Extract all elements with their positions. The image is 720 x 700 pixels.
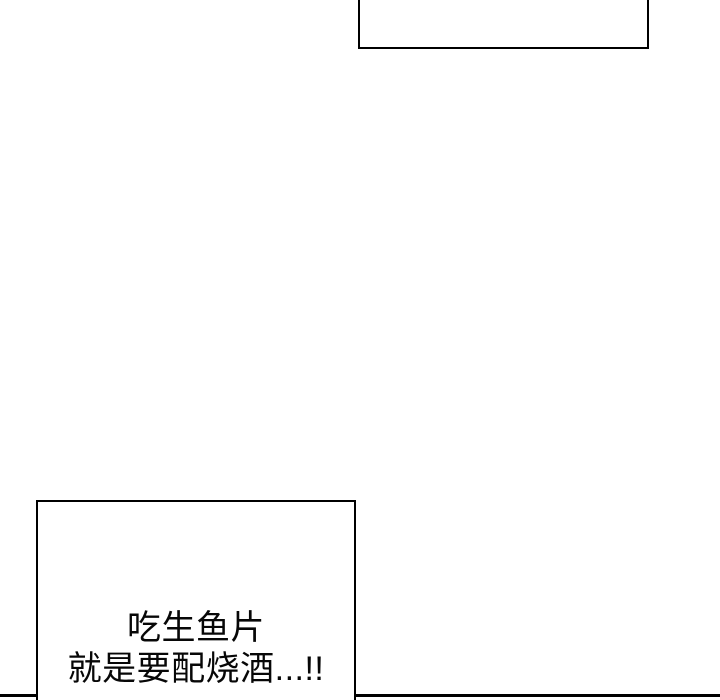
comic-panel: 吃生鱼片 就是要配烧酒...!!: [0, 0, 720, 700]
speech-text: 吃生鱼片 就是要配烧酒...!!: [38, 608, 354, 690]
speech-bubble-top: [358, 0, 649, 49]
speech-bubble-bottom: 吃生鱼片 就是要配烧酒...!!: [36, 500, 356, 700]
speech-text-line-1: 吃生鱼片: [38, 608, 354, 649]
speech-text-line-2: 就是要配烧酒...!!: [38, 649, 354, 690]
